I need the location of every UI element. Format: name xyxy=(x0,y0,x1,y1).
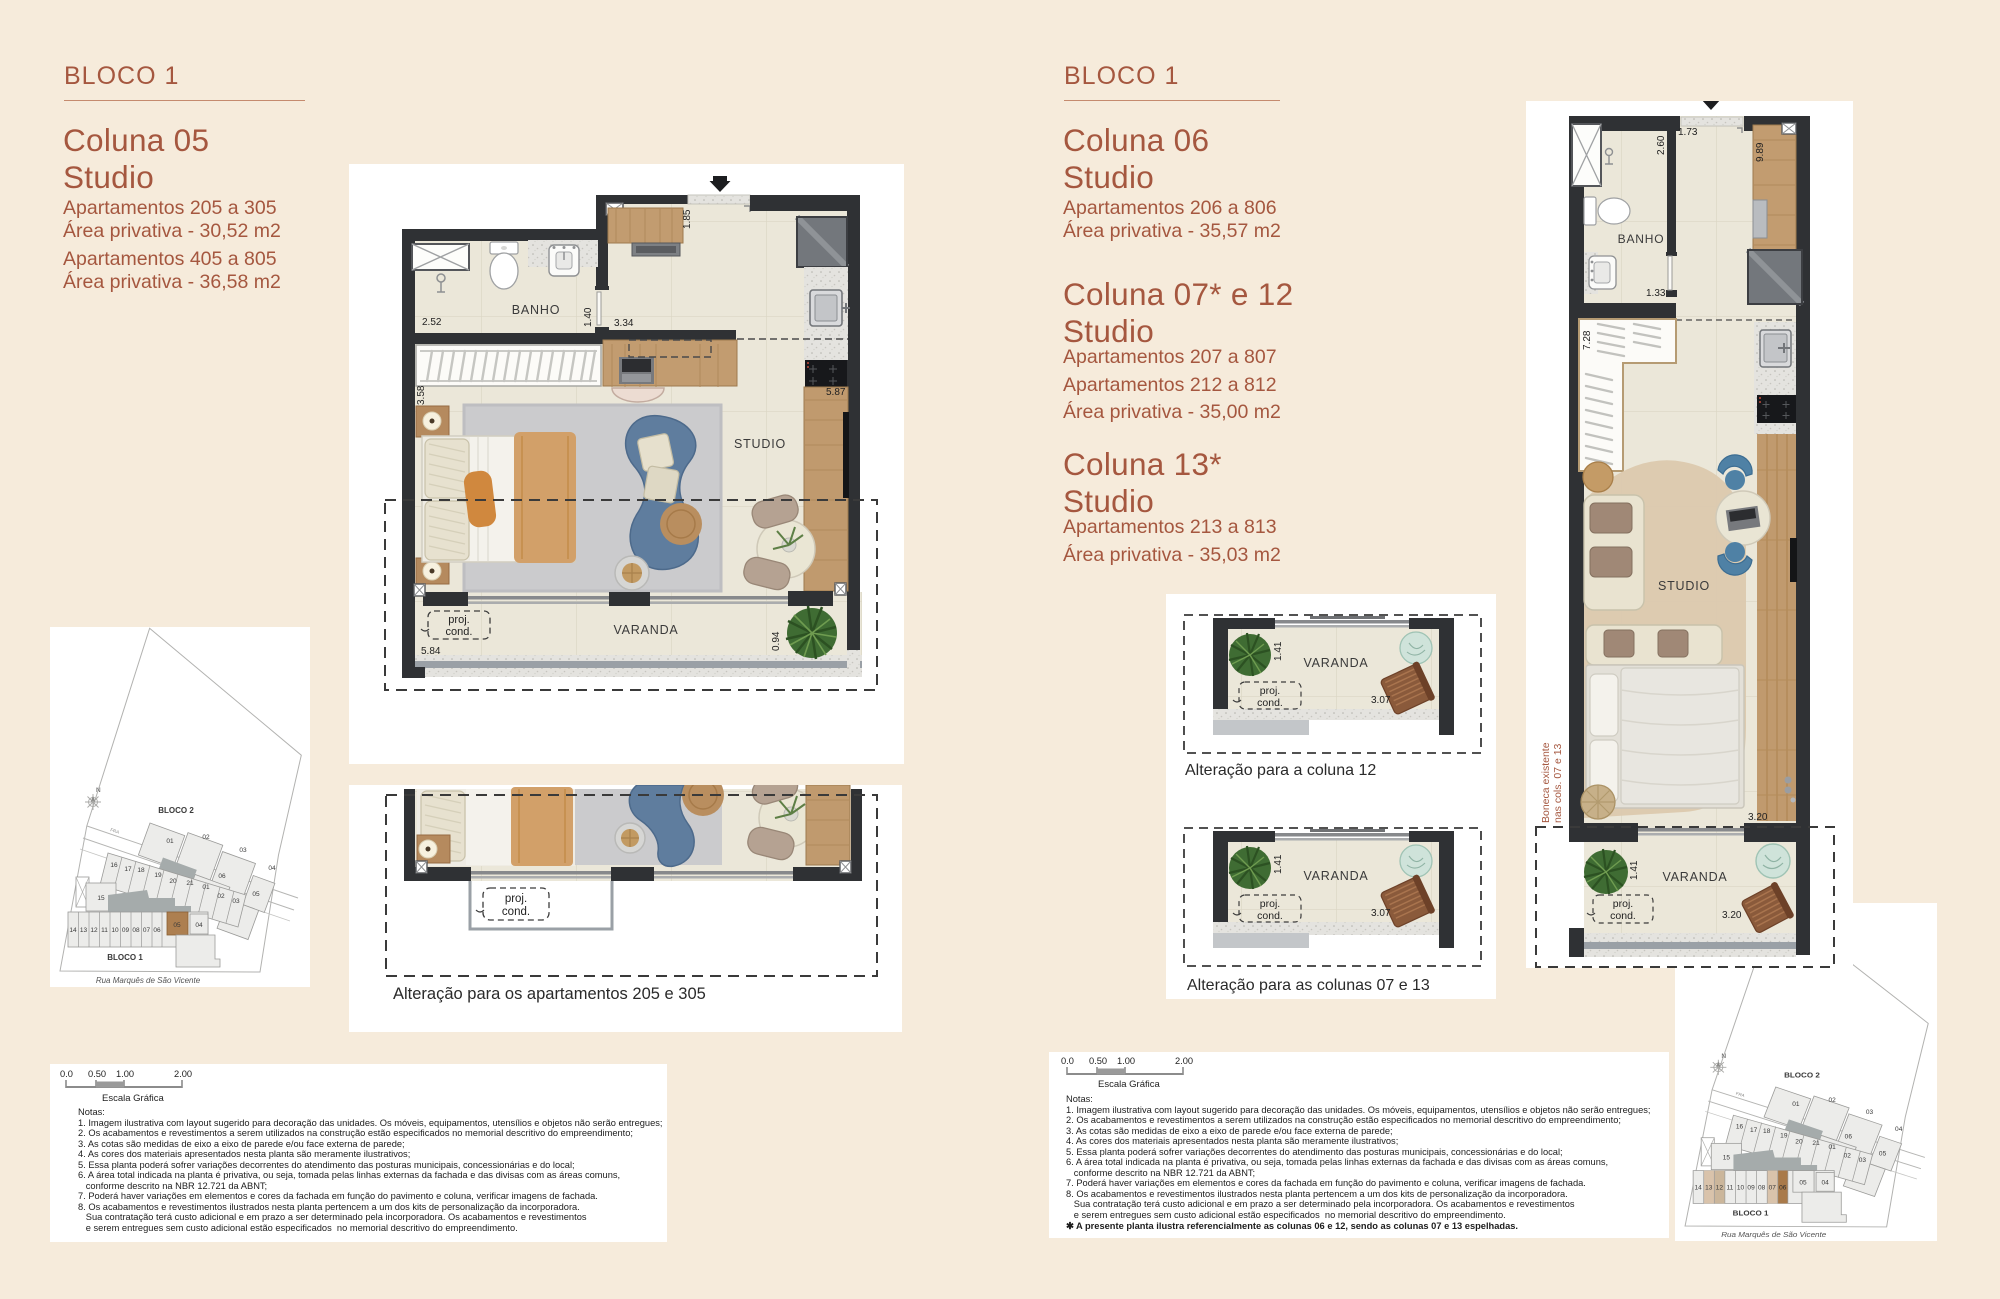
svg-text:Escala Gráfica: Escala Gráfica xyxy=(102,1093,164,1104)
svg-text:0.50: 0.50 xyxy=(1089,1056,1107,1066)
svg-text:04: 04 xyxy=(195,922,203,929)
svg-text:13: 13 xyxy=(1705,1185,1713,1192)
svg-text:N: N xyxy=(96,787,101,794)
svg-text:BLOCO 2: BLOCO 2 xyxy=(1784,1071,1820,1080)
svg-text:1.00: 1.00 xyxy=(116,1069,134,1079)
svg-text:03: 03 xyxy=(232,898,240,905)
svg-text:1.40: 1.40 xyxy=(583,307,594,327)
svg-text:BANHO: BANHO xyxy=(512,303,560,317)
svg-text:01: 01 xyxy=(1829,1144,1837,1151)
svg-text:21: 21 xyxy=(186,880,194,887)
svg-text:1.33: 1.33 xyxy=(1646,288,1666,299)
svg-text:02: 02 xyxy=(1829,1097,1837,1104)
svg-text:3.20: 3.20 xyxy=(1748,812,1768,823)
svg-text:18: 18 xyxy=(137,867,145,874)
svg-text:04: 04 xyxy=(1822,1180,1830,1187)
svg-text:5.87: 5.87 xyxy=(826,387,846,398)
svg-text:VARANDA: VARANDA xyxy=(1303,869,1368,883)
svg-text:11: 11 xyxy=(1727,1185,1734,1192)
svg-text:nas cols. 07 e 13: nas cols. 07 e 13 xyxy=(1552,743,1564,823)
svg-text:proj.: proj. xyxy=(448,614,469,626)
svg-text:3.34: 3.34 xyxy=(614,318,634,329)
svg-text:03: 03 xyxy=(1859,1157,1867,1164)
svg-text:17: 17 xyxy=(1750,1127,1758,1134)
svg-text:BLOCO 2: BLOCO 2 xyxy=(158,806,194,815)
svg-text:02: 02 xyxy=(1844,1153,1852,1160)
svg-text:01: 01 xyxy=(202,884,210,891)
svg-text:19: 19 xyxy=(1780,1133,1788,1140)
svg-text:cond.: cond. xyxy=(446,626,473,638)
svg-text:BANHO: BANHO xyxy=(1618,232,1665,246)
svg-text:14: 14 xyxy=(1695,1185,1703,1192)
svg-text:07: 07 xyxy=(143,927,151,934)
svg-text:cond.: cond. xyxy=(1610,910,1636,922)
svg-text:2.00: 2.00 xyxy=(174,1069,192,1079)
svg-text:Alteração para os apartamentos: Alteração para os apartamentos 205 e 305 xyxy=(393,985,706,1003)
svg-text:02: 02 xyxy=(217,893,225,900)
svg-text:VARANDA: VARANDA xyxy=(1662,870,1727,884)
svg-text:06: 06 xyxy=(1845,1134,1853,1141)
svg-text:10: 10 xyxy=(1737,1185,1745,1192)
svg-text:1.41: 1.41 xyxy=(1273,641,1284,661)
svg-text:15: 15 xyxy=(97,895,105,902)
svg-text:20: 20 xyxy=(1795,1139,1803,1146)
svg-text:BLOCO 1: BLOCO 1 xyxy=(107,953,143,962)
svg-text:7.28: 7.28 xyxy=(1582,330,1593,350)
svg-text:0.0: 0.0 xyxy=(1061,1056,1074,1066)
svg-text:01: 01 xyxy=(166,838,174,845)
svg-text:STUDIO: STUDIO xyxy=(734,437,786,451)
svg-text:06: 06 xyxy=(1779,1185,1787,1192)
svg-text:13: 13 xyxy=(80,927,88,934)
svg-text:1.41: 1.41 xyxy=(1629,860,1640,880)
svg-text:11: 11 xyxy=(101,927,108,934)
svg-text:16: 16 xyxy=(1736,1124,1744,1131)
svg-text:proj.: proj. xyxy=(505,893,527,905)
svg-text:04: 04 xyxy=(268,865,276,872)
svg-text:9.89: 9.89 xyxy=(1755,142,1766,162)
svg-text:Rua Marquês de São Vicente: Rua Marquês de São Vicente xyxy=(1721,1230,1827,1239)
svg-text:07: 07 xyxy=(1769,1185,1777,1192)
svg-text:04: 04 xyxy=(1895,1126,1903,1133)
svg-text:Alteração para as colunas 07 e: Alteração para as colunas 07 e 13 xyxy=(1187,977,1430,994)
svg-text:05: 05 xyxy=(173,922,181,929)
svg-text:Boneca existente: Boneca existente xyxy=(1540,742,1552,823)
svg-text:19: 19 xyxy=(154,872,162,879)
svg-text:21: 21 xyxy=(1812,1140,1820,1147)
svg-text:06: 06 xyxy=(153,927,161,934)
svg-text:3.20: 3.20 xyxy=(1722,910,1742,921)
svg-text:16: 16 xyxy=(110,862,118,869)
svg-text:03: 03 xyxy=(1866,1109,1874,1116)
svg-text:VARANDA: VARANDA xyxy=(1303,656,1368,670)
svg-text:02: 02 xyxy=(202,834,210,841)
svg-text:08: 08 xyxy=(132,927,140,934)
svg-text:12: 12 xyxy=(1716,1185,1724,1192)
svg-text:18: 18 xyxy=(1763,1128,1771,1135)
svg-text:17: 17 xyxy=(124,866,132,873)
svg-text:0.94: 0.94 xyxy=(771,631,782,651)
svg-text:01: 01 xyxy=(1792,1101,1800,1108)
svg-text:N: N xyxy=(1721,1053,1726,1060)
svg-text:09: 09 xyxy=(122,927,130,934)
svg-text:06: 06 xyxy=(218,873,226,880)
svg-text:3.07: 3.07 xyxy=(1371,908,1391,919)
svg-text:proj.: proj. xyxy=(1613,898,1633,910)
svg-text:05: 05 xyxy=(1879,1151,1887,1158)
svg-text:cond.: cond. xyxy=(1257,910,1283,922)
svg-text:10: 10 xyxy=(111,927,119,934)
svg-text:Rua Marquês de São Vicente: Rua Marquês de São Vicente xyxy=(96,976,201,985)
svg-text:12: 12 xyxy=(90,927,98,934)
svg-text:STUDIO: STUDIO xyxy=(1658,579,1710,593)
svg-text:14: 14 xyxy=(69,927,77,934)
svg-text:05: 05 xyxy=(1799,1180,1807,1187)
svg-text:Alteração para a coluna 12: Alteração para a coluna 12 xyxy=(1185,762,1376,779)
svg-text:proj.: proj. xyxy=(1260,685,1280,697)
svg-text:08: 08 xyxy=(1758,1185,1766,1192)
svg-text:0.50: 0.50 xyxy=(88,1069,106,1079)
svg-text:2.60: 2.60 xyxy=(1656,135,1667,155)
svg-text:03: 03 xyxy=(239,847,247,854)
svg-text:3.58: 3.58 xyxy=(416,385,427,405)
svg-text:Escala Gráfica: Escala Gráfica xyxy=(1098,1079,1160,1090)
svg-text:0.0: 0.0 xyxy=(60,1069,73,1079)
svg-text:1.73: 1.73 xyxy=(1678,127,1698,138)
svg-text:cond.: cond. xyxy=(1257,697,1283,709)
svg-text:2.00: 2.00 xyxy=(1175,1056,1193,1066)
svg-text:1.00: 1.00 xyxy=(1117,1056,1135,1066)
svg-text:20: 20 xyxy=(169,878,177,885)
svg-text:09: 09 xyxy=(1747,1185,1755,1192)
svg-text:1.41: 1.41 xyxy=(1273,854,1284,874)
svg-text:VARANDA: VARANDA xyxy=(613,623,678,637)
svg-text:5.84: 5.84 xyxy=(421,646,441,657)
svg-text:3.07: 3.07 xyxy=(1371,695,1391,706)
svg-text:05: 05 xyxy=(252,891,260,898)
svg-text:15: 15 xyxy=(1723,1154,1731,1161)
svg-text:2.52: 2.52 xyxy=(422,317,442,328)
svg-text:1.85: 1.85 xyxy=(682,209,693,229)
svg-text:proj.: proj. xyxy=(1260,898,1280,910)
svg-text:cond.: cond. xyxy=(502,906,530,918)
svg-text:BLOCO 1: BLOCO 1 xyxy=(1733,1209,1769,1218)
